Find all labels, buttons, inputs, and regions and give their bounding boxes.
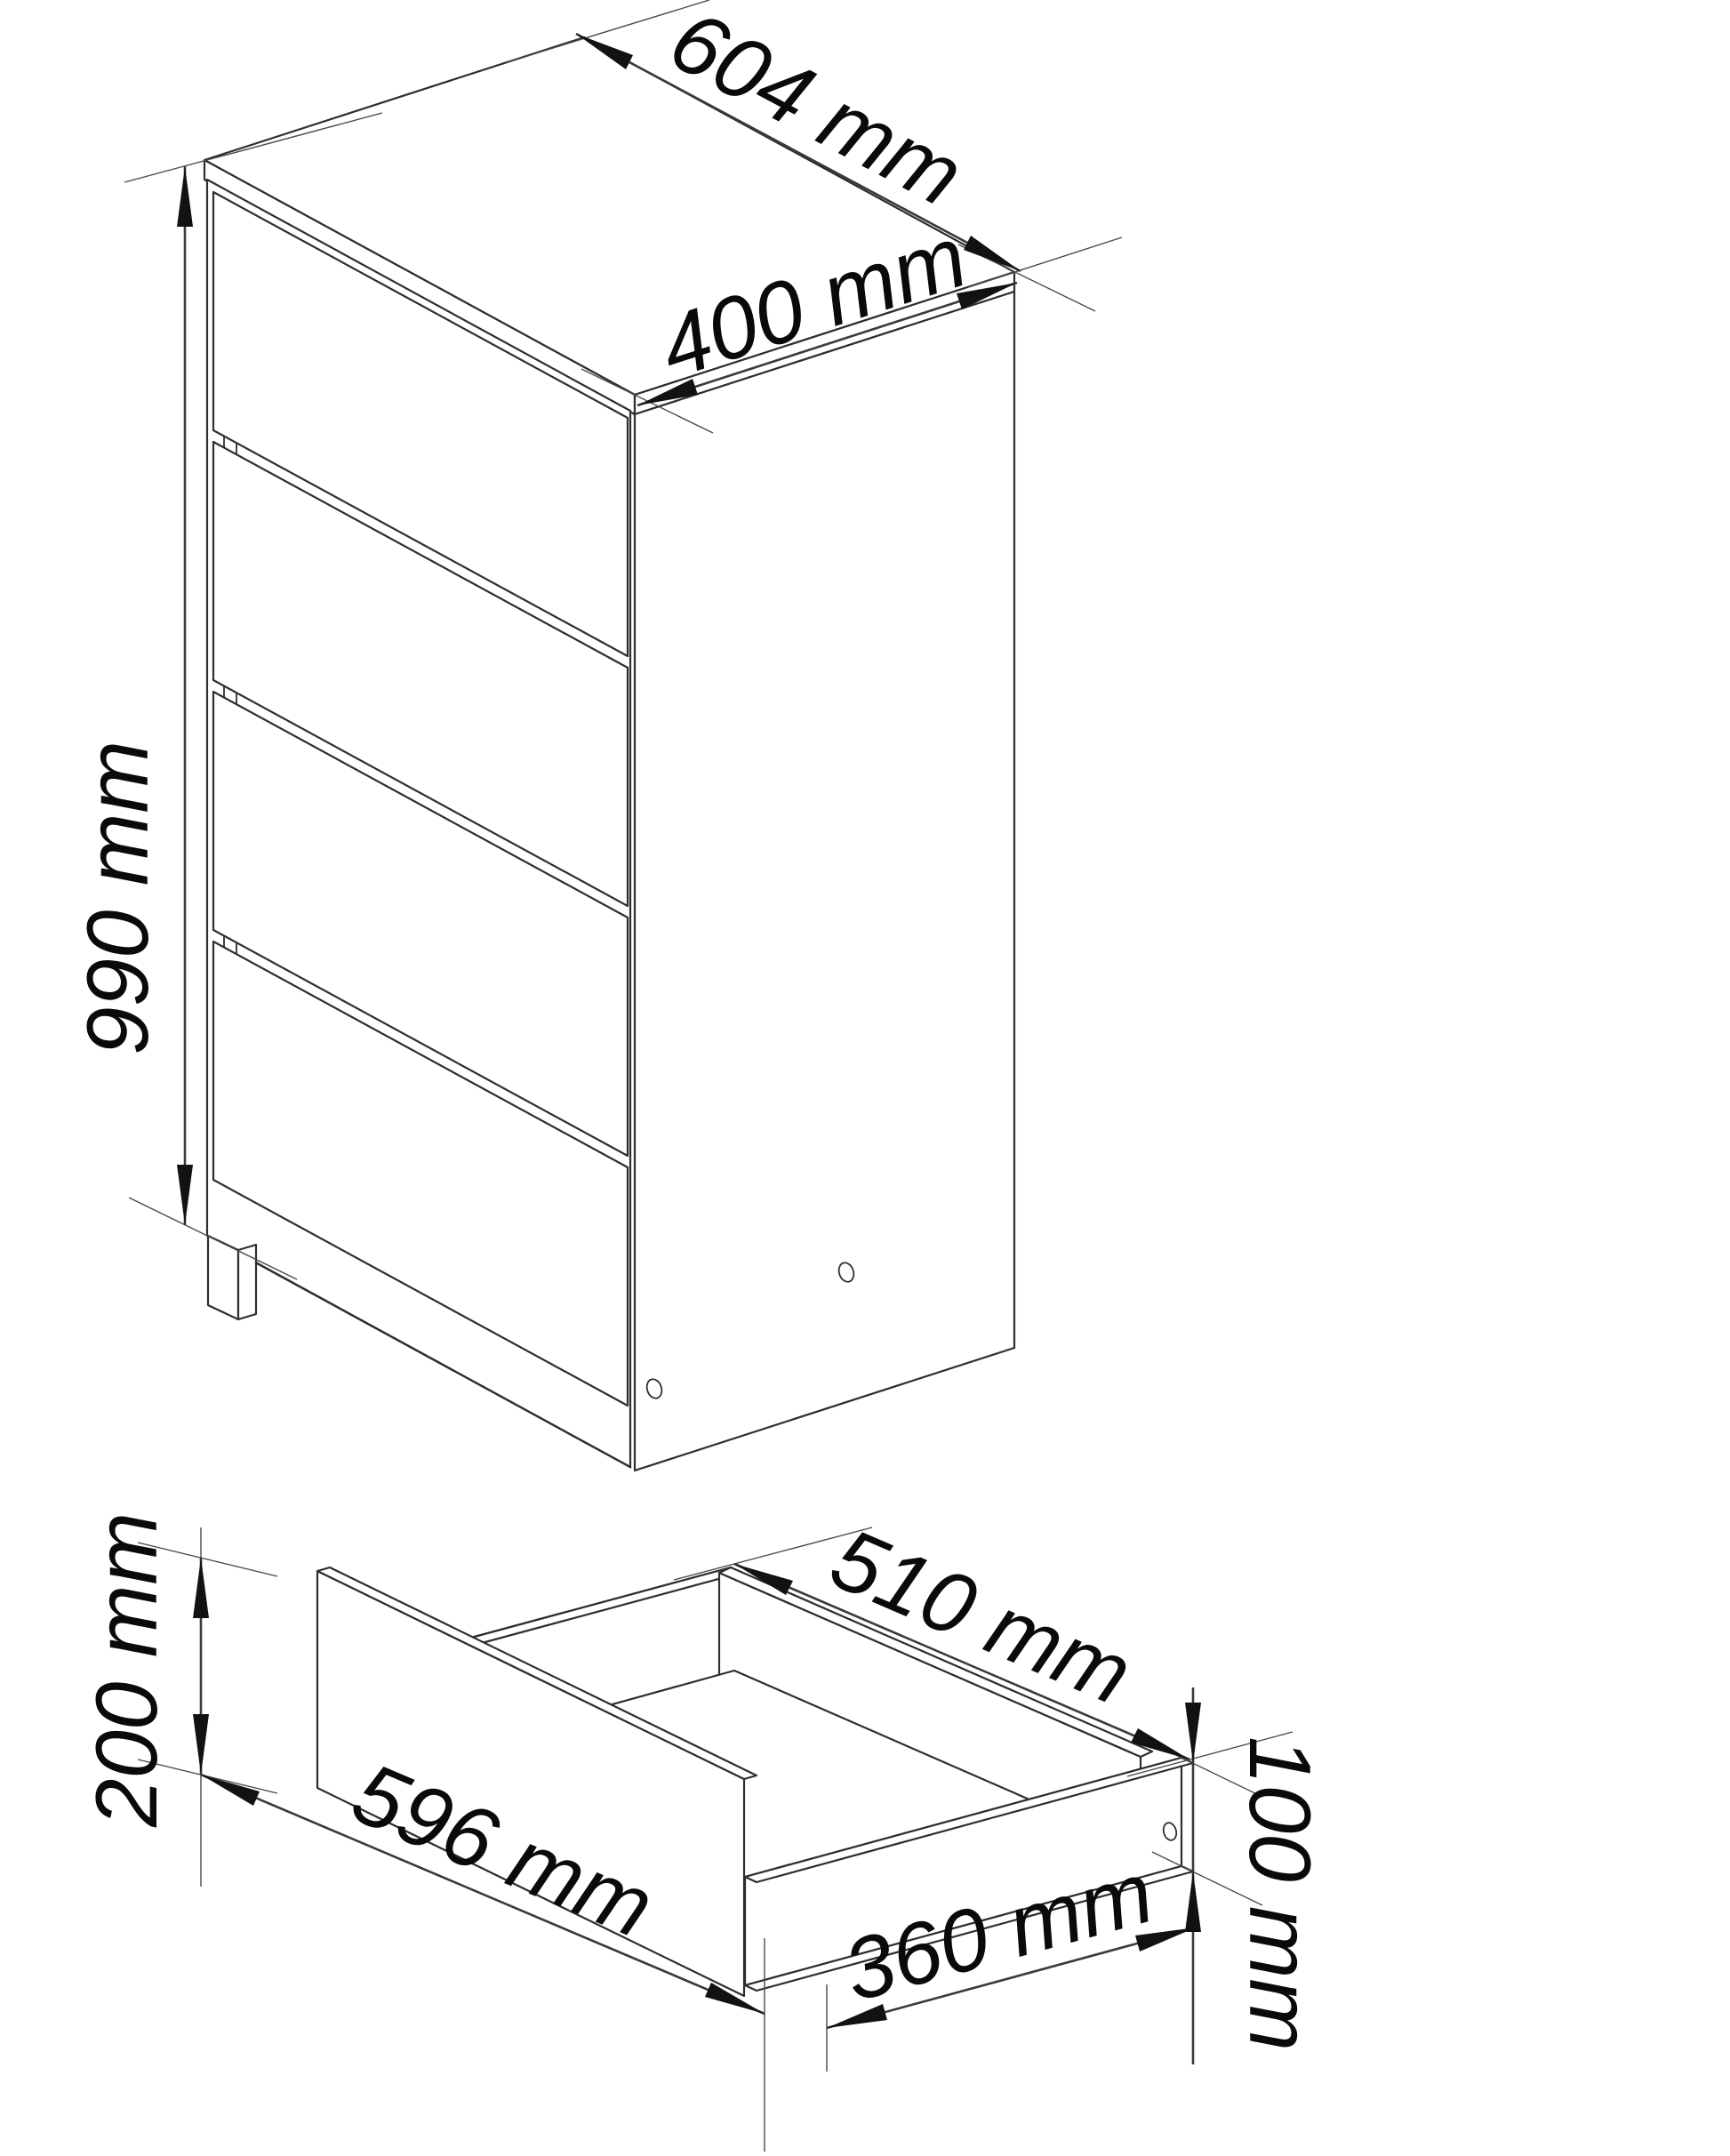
arrowhead [1185, 1871, 1201, 1932]
arrowhead [177, 166, 193, 227]
front-left-foot-side [238, 1245, 256, 1319]
cabinet-side-panel [635, 292, 1014, 1471]
arrowhead [177, 1165, 193, 1225]
drawer-view: 200 mm 596 mm 510 mm 360 mm 100 mm [77, 1509, 1329, 2152]
technical-drawing-page: 604 mm 400 mm 990 mm [0, 0, 1730, 2156]
arrowhead [193, 1558, 209, 1618]
dim-label-height-990: 990 mm [68, 741, 166, 1055]
drawing-svg: 604 mm 400 mm 990 mm [0, 0, 1730, 2156]
dim-label-front-height-200: 200 mm [77, 1512, 175, 1828]
dim-label-side-height-100: 100 mm [1231, 1736, 1329, 2051]
arrowhead [201, 1775, 260, 1806]
arrowhead [1185, 1703, 1201, 1763]
cabinet-view: 604 mm 400 mm 990 mm [68, 0, 1122, 1471]
arrowhead [193, 1714, 209, 1775]
